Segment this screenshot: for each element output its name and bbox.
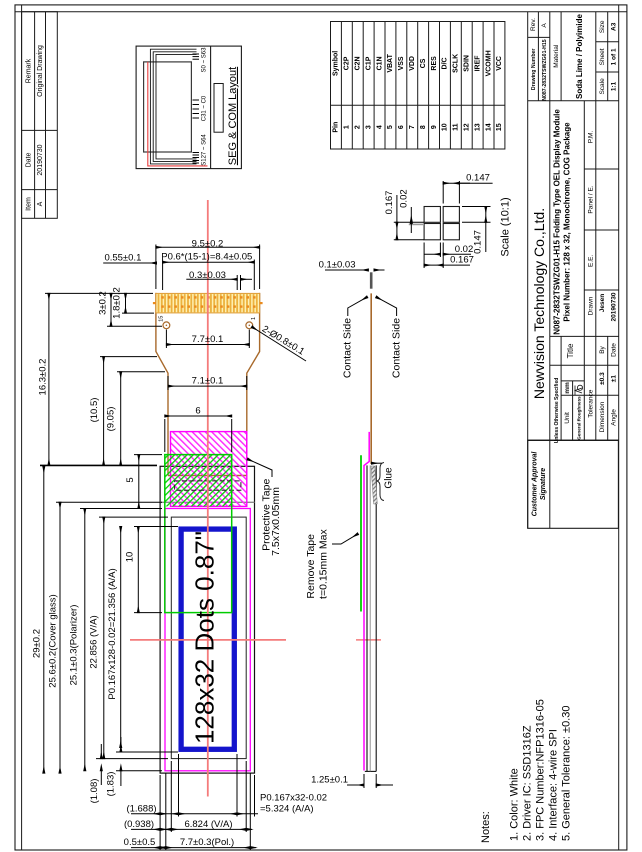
svg-text:P0.6*(15-1)=8.4±0.05: P0.6*(15-1)=8.4±0.05 — [161, 252, 252, 263]
svg-text:C31 ~ C0: C31 ~ C0 — [201, 95, 207, 121]
svg-text:10: 10 — [125, 552, 136, 563]
svg-text:Unless Otherwise Specified: Unless Otherwise Specified — [554, 378, 560, 444]
svg-text:P0.167x128-0.02=21.356 (A/A): P0.167x128-0.02=21.356 (A/A) — [107, 568, 118, 699]
svg-text:Material: Material — [553, 44, 560, 68]
svg-text:P.M.: P.M. — [588, 131, 595, 144]
svg-text:2: 2 — [355, 125, 362, 129]
svg-text:Remark: Remark — [26, 58, 33, 83]
svg-text:22.856 (V/A): 22.856 (V/A) — [88, 615, 99, 668]
svg-text:(1.688): (1.688) — [126, 803, 156, 814]
svg-text:5: 5 — [387, 125, 394, 129]
svg-text:(9.05): (9.05) — [106, 407, 117, 432]
svg-text:S127 ~ S64: S127 ~ S64 — [201, 134, 207, 166]
svg-text:Size: Size — [599, 20, 606, 33]
svg-text:29±0.2: 29±0.2 — [31, 629, 42, 658]
svg-text:VCOMH: VCOMH — [485, 50, 492, 76]
svg-text:Soda Lime / Polyimide: Soda Lime / Polyimide — [575, 14, 584, 99]
svg-text:Pin: Pin — [333, 122, 340, 133]
svg-text:1:1: 1:1 — [611, 81, 618, 91]
svg-text:N087-2832TSWZG01-H15: N087-2832TSWZG01-H15 — [542, 39, 548, 101]
svg-text:Jesen: Jesen — [599, 294, 606, 312]
svg-text:VCC: VCC — [496, 56, 503, 71]
svg-text:N087-2832TSWZG01-H15 Folding T: N087-2832TSWZG01-H15 Folding Type OEL Di… — [553, 109, 562, 335]
svg-text:3: 3 — [365, 125, 372, 129]
svg-text:Newvision Technology Co.,Ltd.: Newvision Technology Co.,Ltd. — [531, 208, 547, 399]
svg-text:=5.324 (A/A): =5.324 (A/A) — [260, 804, 314, 815]
svg-text:9: 9 — [431, 125, 438, 129]
svg-text:Drawing Number: Drawing Number — [531, 49, 537, 91]
svg-text:7.7±0.3(Pol.): 7.7±0.3(Pol.) — [180, 837, 234, 848]
svg-text:128x32 Dots 0.87": 128x32 Dots 0.87" — [189, 531, 219, 744]
svg-text:D/C: D/C — [442, 57, 449, 69]
svg-text:0.5±0.5: 0.5±0.5 — [124, 837, 156, 848]
svg-text:t=0.15mm Max: t=0.15mm Max — [318, 528, 330, 598]
svg-text:Contact Side: Contact Side — [390, 318, 402, 378]
svg-text:Signature: Signature — [540, 468, 547, 500]
svg-text:Angle: Angle — [611, 409, 618, 426]
svg-text:(1.83): (1.83) — [105, 772, 116, 797]
svg-text:1.25±0.1: 1.25±0.1 — [311, 775, 348, 786]
svg-text:12: 12 — [464, 123, 471, 131]
svg-text:(0.938): (0.938) — [124, 819, 154, 830]
svg-text:Original Drawing: Original Drawing — [37, 45, 44, 97]
svg-text:5: 5 — [125, 477, 136, 482]
svg-text:1 of 1: 1 of 1 — [611, 48, 618, 65]
svg-text:Customer Approval: Customer Approval — [532, 451, 539, 517]
svg-text:General Roughness: General Roughness — [576, 396, 581, 440]
svg-text:0.167: 0.167 — [450, 255, 474, 266]
svg-text:25.6±0.2(Cover glass): 25.6±0.2(Cover glass) — [48, 594, 59, 687]
svg-text:6: 6 — [398, 125, 405, 129]
svg-text:±0.3: ±0.3 — [599, 372, 606, 385]
svg-text:Pixel Number: 128 x 32, Monoch: Pixel Number: 128 x 32, Monochrome, COG … — [563, 122, 572, 322]
svg-text:S0 ~ S63: S0 ~ S63 — [201, 47, 207, 73]
svg-text:20190730: 20190730 — [37, 144, 44, 175]
svg-text:CS: CS — [420, 58, 427, 68]
svg-text:VSS: VSS — [398, 56, 405, 70]
svg-text:7.1±0.1: 7.1±0.1 — [192, 375, 224, 386]
svg-text:A: A — [37, 201, 44, 206]
svg-text:Contact Side: Contact Side — [342, 318, 354, 378]
svg-text:mm: mm — [564, 382, 571, 394]
svg-text:25.1±0.3(Polarizer): 25.1±0.3(Polarizer) — [68, 605, 79, 686]
svg-text:Item: Item — [26, 197, 33, 211]
svg-text:0.3±0.03: 0.3±0.03 — [189, 270, 226, 281]
svg-text:IREF: IREF — [474, 55, 481, 72]
svg-text:2. Driver IC: SSD1316Z: 2. Driver IC: SSD1316Z — [522, 725, 534, 841]
svg-text:1.8±0.2: 1.8±0.2 — [112, 287, 123, 319]
svg-text:Scale (10:1): Scale (10:1) — [500, 197, 512, 256]
svg-text:9.5±0.2: 9.5±0.2 — [192, 238, 224, 249]
svg-text:C2P: C2P — [344, 56, 351, 70]
svg-text:10: 10 — [442, 123, 449, 131]
svg-text:SCLK: SCLK — [453, 54, 460, 73]
svg-text:RES: RES — [431, 56, 438, 71]
svg-text:C1P: C1P — [365, 56, 372, 70]
svg-text:11: 11 — [453, 123, 460, 131]
svg-text:Sheet: Sheet — [599, 48, 606, 65]
svg-text:20190730: 20190730 — [611, 292, 618, 321]
svg-text:8: 8 — [420, 125, 427, 129]
svg-text:Date: Date — [611, 343, 618, 357]
svg-text:Panel / E.: Panel / E. — [588, 185, 595, 213]
svg-text:SEG & COM Layout: SEG & COM Layout — [227, 67, 239, 165]
svg-text:5. General Tolerance: ±0.30: 5. General Tolerance: ±0.30 — [561, 706, 573, 841]
svg-text:0.147: 0.147 — [466, 173, 490, 184]
svg-text:A: A — [541, 23, 548, 28]
svg-text:By: By — [599, 345, 606, 353]
svg-text:SDIN: SDIN — [464, 55, 471, 72]
svg-text:14: 14 — [485, 123, 492, 131]
svg-text:Dimension: Dimension — [599, 401, 606, 432]
svg-text:7.5x7x0.05mm: 7.5x7x0.05mm — [270, 487, 282, 556]
svg-text:C1N: C1N — [376, 56, 383, 70]
svg-text:±1: ±1 — [611, 375, 618, 383]
svg-text:1. Color: White: 1. Color: White — [509, 768, 521, 841]
svg-text:4: 4 — [376, 125, 383, 129]
svg-text:Scale: Scale — [599, 78, 606, 95]
svg-text:3±0.2: 3±0.2 — [98, 291, 109, 315]
svg-text:Date: Date — [26, 153, 33, 168]
svg-text:A3: A3 — [611, 22, 618, 31]
svg-text:1: 1 — [251, 317, 257, 320]
svg-text:Symbol: Symbol — [333, 51, 340, 76]
svg-text:13: 13 — [474, 123, 481, 131]
svg-text:VBAT: VBAT — [387, 53, 394, 72]
svg-text:0.1±0.03: 0.1±0.03 — [319, 259, 356, 270]
svg-text:0.55±0.1: 0.55±0.1 — [104, 253, 141, 264]
svg-text:0.147: 0.147 — [473, 230, 484, 254]
svg-text:3. FPC Number:NFP1316-05: 3. FPC Number:NFP1316-05 — [535, 699, 547, 841]
svg-text:Unit: Unit — [564, 412, 571, 424]
svg-text:Rev.: Rev. — [530, 18, 537, 31]
svg-text:E.E.: E.E. — [588, 255, 595, 267]
svg-text:0.02: 0.02 — [455, 244, 474, 255]
svg-text:0.02: 0.02 — [399, 189, 410, 208]
svg-text:16.3±0.2: 16.3±0.2 — [37, 359, 48, 396]
svg-text:Title: Title — [566, 343, 575, 358]
svg-text:Drawn: Drawn — [588, 296, 595, 315]
svg-text:Tolerance: Tolerance — [588, 389, 595, 418]
svg-text:6.824 (V/A): 6.824 (V/A) — [184, 819, 232, 830]
svg-text:(10.5): (10.5) — [89, 398, 100, 423]
svg-text:15: 15 — [158, 316, 164, 322]
svg-text:C2N: C2N — [355, 56, 362, 70]
svg-text:4. Interface: 4-wire SPI: 4. Interface: 4-wire SPI — [548, 729, 560, 841]
svg-text:VDD: VDD — [409, 56, 416, 71]
svg-text:1: 1 — [344, 125, 351, 129]
svg-text:7: 7 — [409, 125, 416, 129]
svg-text:Glue: Glue — [383, 467, 394, 489]
svg-text:0.167: 0.167 — [384, 191, 395, 215]
svg-text:P0.167x32-0.02: P0.167x32-0.02 — [260, 792, 327, 803]
svg-text:6: 6 — [195, 405, 200, 416]
svg-text:(1.08): (1.08) — [89, 779, 100, 804]
svg-text:7.7±0.1: 7.7±0.1 — [192, 334, 224, 345]
svg-text:15: 15 — [496, 123, 503, 131]
svg-text:Notes:: Notes: — [480, 811, 492, 843]
svg-text:Remove Tape: Remove Tape — [305, 534, 317, 599]
